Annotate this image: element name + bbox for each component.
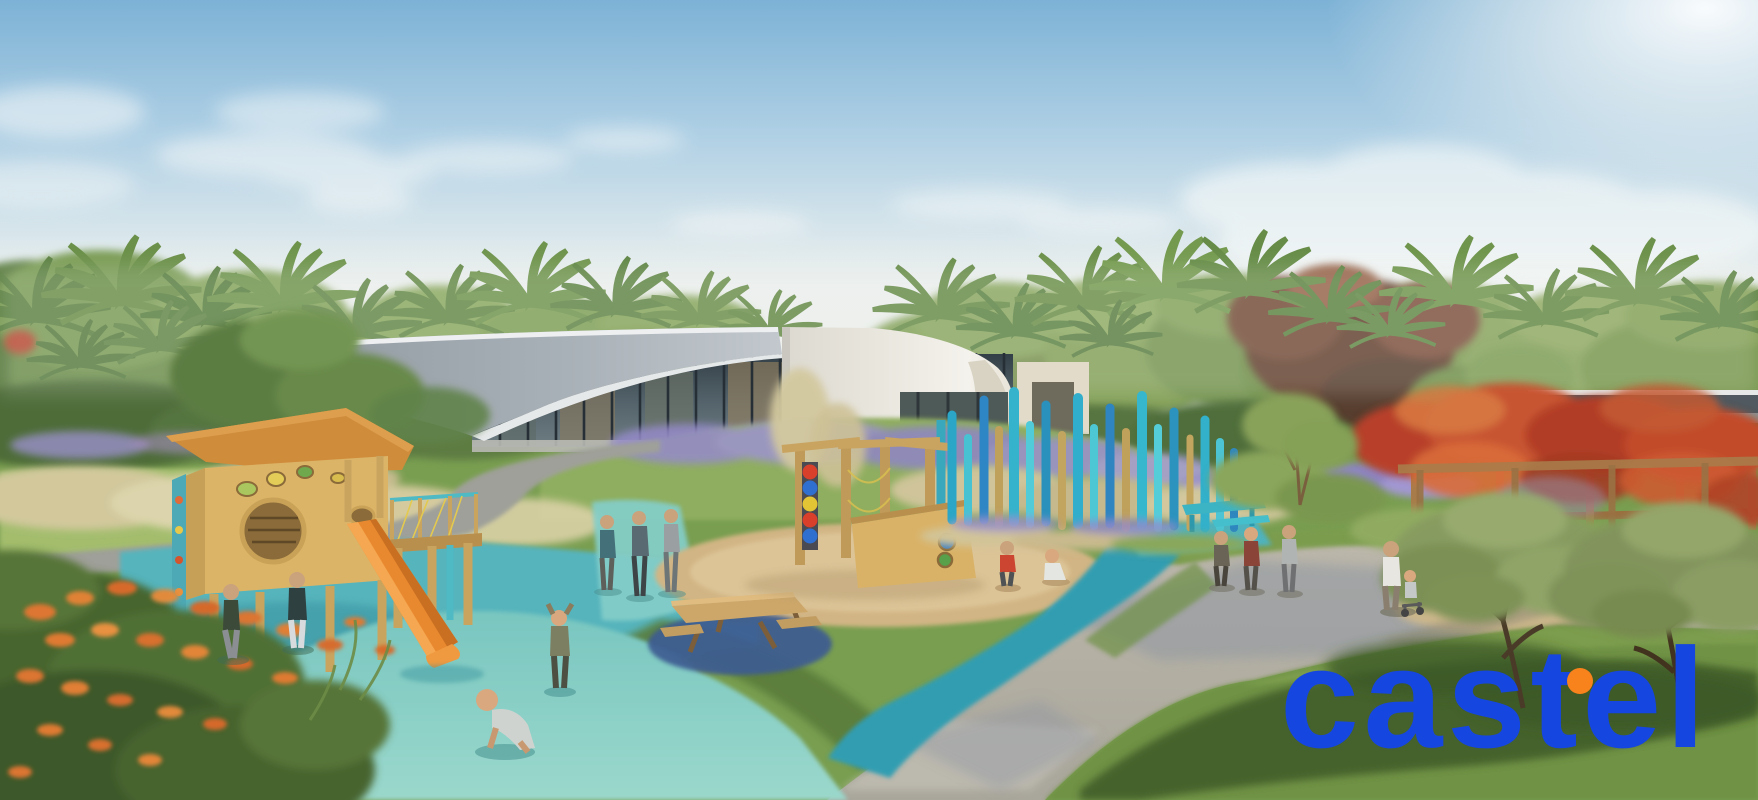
svg-text:castel: castel — [1280, 619, 1710, 778]
